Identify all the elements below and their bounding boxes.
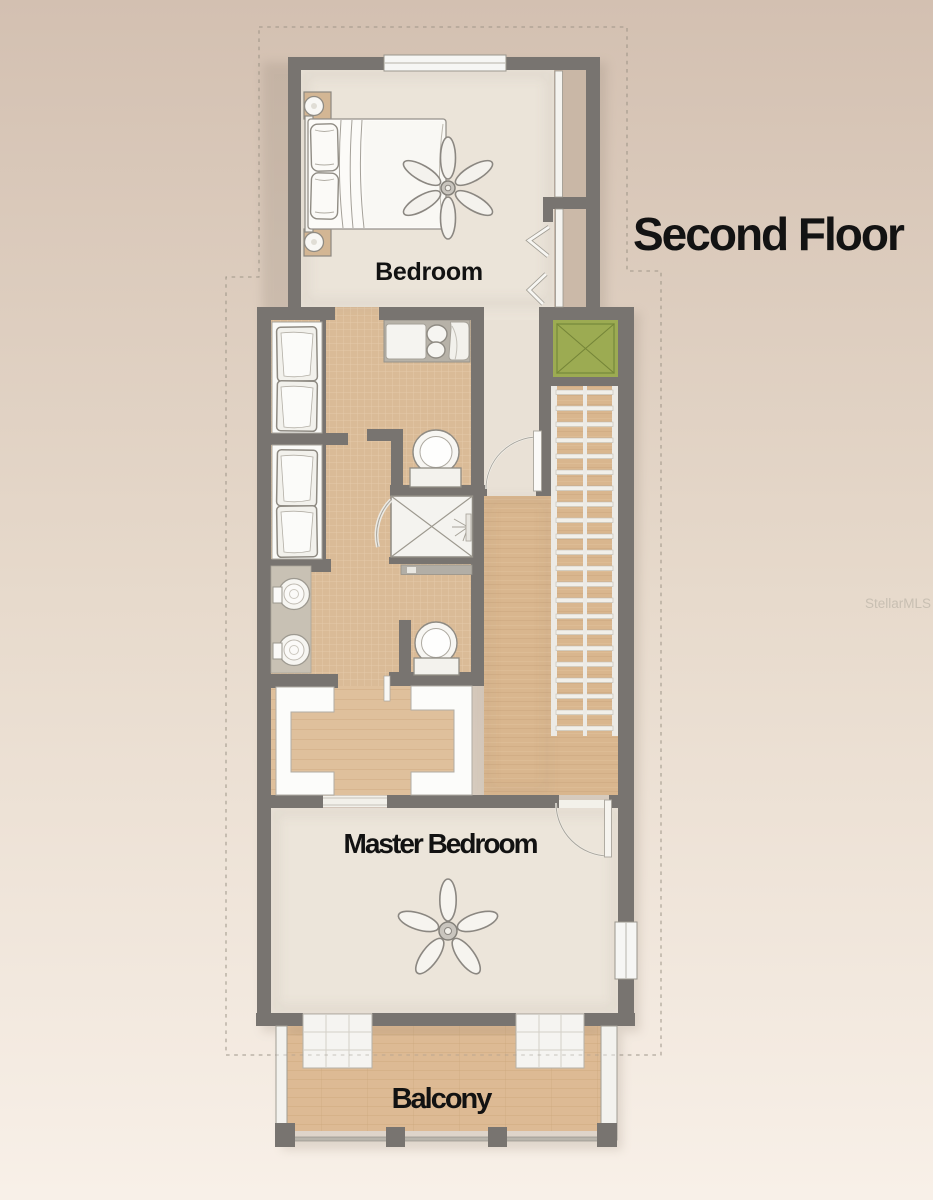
svg-text:Master Bedroom: Master Bedroom (344, 828, 538, 859)
svg-text:Balcony: Balcony (392, 1083, 493, 1115)
svg-text:StellarMLS: StellarMLS (865, 596, 931, 611)
svg-text:Second Floor: Second Floor (633, 208, 905, 260)
svg-text:Bedroom: Bedroom (375, 258, 483, 286)
